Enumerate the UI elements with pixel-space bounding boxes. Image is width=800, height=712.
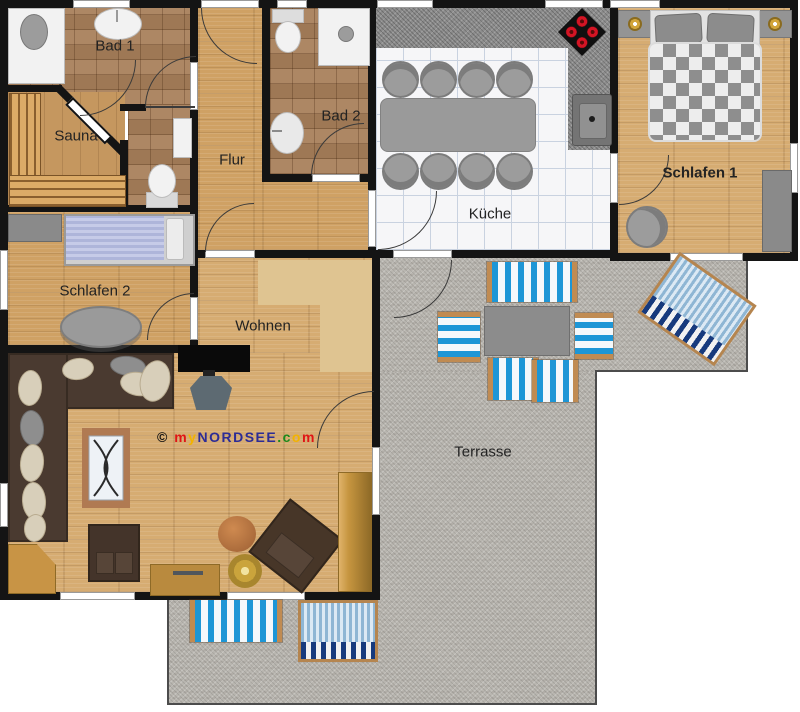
toilet-icon	[275, 21, 301, 53]
round-table-icon	[60, 306, 142, 348]
terrace-border	[167, 703, 597, 705]
room-label-bad1: Bad 1	[95, 38, 134, 55]
garden-table-icon	[484, 306, 570, 356]
chair-icon	[496, 61, 533, 98]
deck-chair-icon	[488, 358, 538, 400]
lamp-icon	[628, 17, 642, 31]
double-bed-icon	[648, 42, 762, 142]
burner-icon	[574, 35, 590, 51]
tv-icon	[178, 345, 250, 372]
duvet-icon	[66, 216, 164, 260]
window	[610, 0, 660, 8]
room-label-flur: Flur	[219, 152, 245, 169]
door-opening-wohnen-terrasse	[372, 447, 380, 515]
coffee-table-icon	[218, 516, 256, 552]
room-label-schlafen1: Schlafen 1	[662, 165, 737, 182]
deck-chair-icon	[575, 313, 613, 359]
wardrobe-icon	[762, 170, 792, 252]
single-bed-icon	[64, 214, 195, 266]
shower-head-icon	[20, 14, 48, 50]
room-label-bad2: Bad 2	[321, 108, 360, 125]
chair-icon	[458, 61, 495, 98]
beach-chair-front	[301, 642, 375, 659]
chair-icon	[420, 61, 457, 98]
deck-chair-icon	[438, 312, 480, 362]
room-label-sauna: Sauna	[54, 128, 97, 145]
room-label-wohnen: Wohnen	[235, 318, 291, 335]
faucet-icon	[116, 10, 118, 22]
wall-sauna-top	[0, 85, 62, 92]
room-label-terrasse: Terrasse	[454, 444, 512, 461]
watermark-segment: NORDSEE	[197, 429, 277, 445]
wardrobe-icon	[8, 214, 62, 242]
nightstand-icon	[618, 10, 652, 38]
window	[227, 592, 305, 600]
wall-bad2-left	[262, 8, 270, 182]
kitchen-sink-icon	[572, 94, 612, 146]
terrace-border	[595, 372, 597, 705]
window	[377, 0, 433, 8]
deck-chair-icon	[532, 360, 578, 402]
watermark-segment: o	[292, 429, 302, 445]
window	[73, 0, 130, 8]
watermark: © myNORDSEE.com	[157, 429, 316, 445]
pillow-icon	[166, 218, 184, 260]
faucet-icon	[272, 130, 282, 132]
door-opening-kueche	[368, 190, 376, 247]
room-label-schlafen2: Schlafen 2	[60, 283, 131, 300]
armchair-icon	[88, 524, 140, 582]
door-leaf	[145, 106, 195, 108]
armchair-seat-icon	[96, 552, 114, 574]
rug-icon	[82, 428, 130, 508]
toilet-icon	[148, 164, 176, 198]
cabinet-icon	[338, 472, 372, 592]
burner-icon	[585, 24, 601, 40]
window	[0, 250, 8, 310]
washbasin-icon	[270, 112, 304, 154]
bath-shelf-icon	[173, 118, 192, 158]
washbasin-icon	[94, 8, 142, 40]
chair-icon	[496, 153, 533, 190]
watermark-segment: c	[283, 429, 292, 445]
chair-icon	[382, 153, 419, 190]
watermark-segment: m	[302, 429, 316, 445]
wall-bad1-nook-stub	[120, 104, 146, 111]
armchair-seat-icon	[265, 532, 314, 578]
handle-icon	[173, 571, 203, 575]
watermark-segment: m	[174, 429, 188, 445]
lamp-icon	[768, 17, 782, 31]
chair-icon	[382, 61, 419, 98]
floor-plan: Bad 1 Sauna Flur Bad 2 Küche Schlafen 1 …	[0, 0, 800, 712]
door-opening-terrasse	[393, 250, 452, 258]
deck-chair-icon	[190, 600, 282, 642]
entry-door-opening	[201, 0, 259, 8]
terrace-border	[167, 600, 169, 705]
chair-icon	[458, 153, 495, 190]
burner-icon	[574, 14, 590, 30]
chair-icon	[420, 153, 457, 190]
sauna-bench-icon	[9, 175, 126, 207]
pillow-icon	[706, 13, 755, 45]
armchair-seat-icon	[115, 552, 133, 574]
window	[0, 483, 8, 527]
floor-terrasse-mid	[380, 372, 597, 705]
floor-flur-lower	[262, 182, 368, 250]
watermark-segment: ©	[157, 429, 174, 445]
terrace-border	[595, 370, 748, 372]
window	[277, 0, 307, 8]
nightstand-icon	[758, 10, 792, 38]
tv-stand-icon	[190, 376, 232, 410]
shower-drain-icon	[338, 26, 354, 42]
drain-icon	[589, 116, 595, 122]
beach-chair-icon	[298, 600, 378, 662]
pillow-icon	[654, 13, 703, 45]
rug-icon	[320, 260, 372, 372]
window	[545, 0, 603, 8]
sideboard-icon	[150, 564, 220, 596]
window	[60, 592, 135, 600]
chair-icon	[626, 206, 668, 248]
rug-pattern	[82, 428, 130, 508]
sauna-bench-icon	[9, 93, 41, 179]
burner-icon	[564, 24, 580, 40]
dining-table-icon	[380, 98, 536, 152]
deck-chair-icon	[487, 262, 577, 302]
door-opening-schlafen1	[610, 153, 618, 203]
room-label-kueche: Küche	[469, 206, 512, 223]
